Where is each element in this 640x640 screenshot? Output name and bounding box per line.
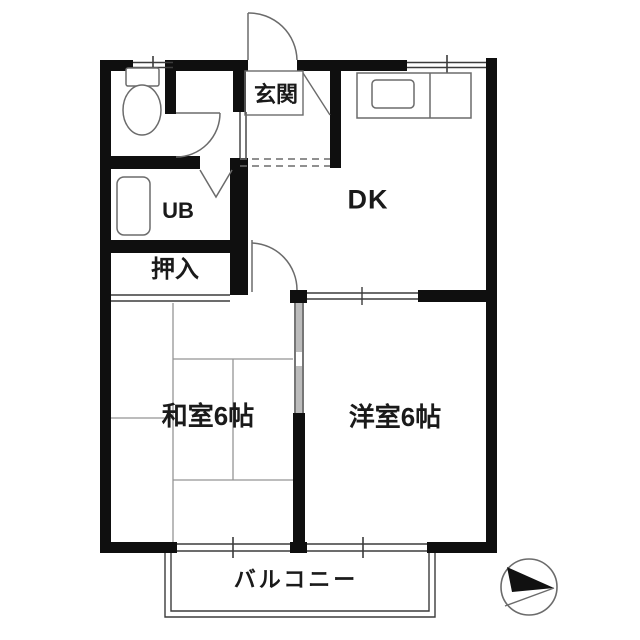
ub-folding-door <box>200 170 232 197</box>
room-label-washitsu: 和室6帖 <box>162 403 254 429</box>
sliding-door-panel <box>296 366 302 413</box>
room-label-yoshitsu: 洋室6帖 <box>349 404 441 430</box>
room-label-ub: UB <box>162 200 194 222</box>
floorplan-drawing <box>0 0 640 640</box>
room-label-dk: DK <box>348 187 389 214</box>
bathtub-icon <box>117 177 150 235</box>
toilet-door-arc <box>176 113 220 157</box>
room-label-balcony: バルコニー <box>234 569 359 591</box>
sliding-door-panel <box>296 303 302 352</box>
floorplan-canvas: 玄関 DK UB 押入 和室6帖 洋室6帖 バルコニー <box>0 0 640 640</box>
toilet-icon <box>123 68 161 135</box>
windows <box>133 55 486 558</box>
washitsu-door-arc <box>252 240 297 292</box>
room-label-genkan: 玄関 <box>254 84 298 106</box>
compass-icon <box>501 559 557 615</box>
room-label-oshiire: 押入 <box>151 258 199 282</box>
entrance-door-arc <box>248 13 297 60</box>
kitchen-sink-icon <box>357 73 471 118</box>
step-dashed-line <box>240 159 330 166</box>
shoe-cabinet-diagonal <box>303 73 330 115</box>
